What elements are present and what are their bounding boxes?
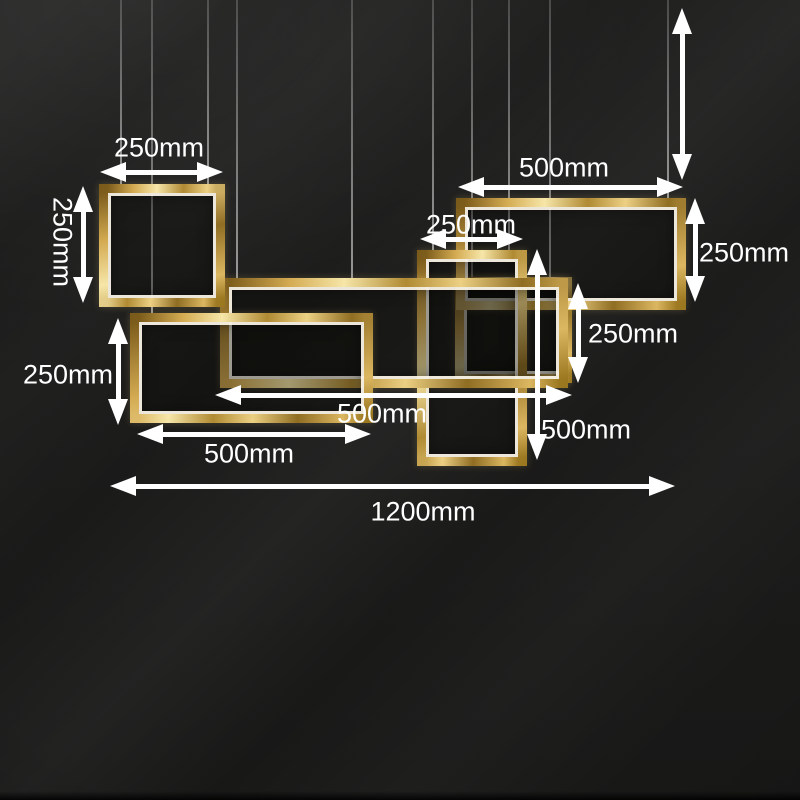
dimension-label: 250mm (114, 135, 204, 162)
dimension-label: 250mm (588, 321, 678, 348)
product-dimension-diagram: 250mm250mm250mm500mm250mm250mm250mm500mm… (0, 0, 800, 800)
dimension-label: 250mm (426, 212, 516, 239)
dimension-label: 500mm (541, 417, 631, 444)
dimension-label: 250mm (23, 362, 113, 389)
dimension-label: 250mm (699, 240, 789, 267)
dimension-label: 500mm (337, 401, 427, 428)
dimension-labels-layer: 250mm250mm250mm500mm250mm250mm250mm500mm… (0, 0, 800, 800)
dimension-label: 1200mm (370, 499, 475, 526)
dimension-label: 250mm (49, 197, 76, 287)
dimension-label: 500mm (519, 155, 609, 182)
dimension-label: 500mm (204, 441, 294, 468)
